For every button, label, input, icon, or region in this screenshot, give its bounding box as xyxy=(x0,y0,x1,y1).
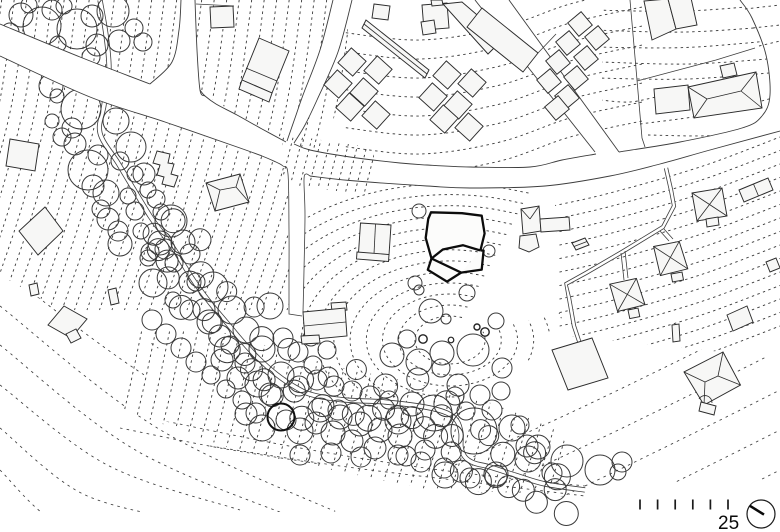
svg-text:25: 25 xyxy=(718,513,739,532)
